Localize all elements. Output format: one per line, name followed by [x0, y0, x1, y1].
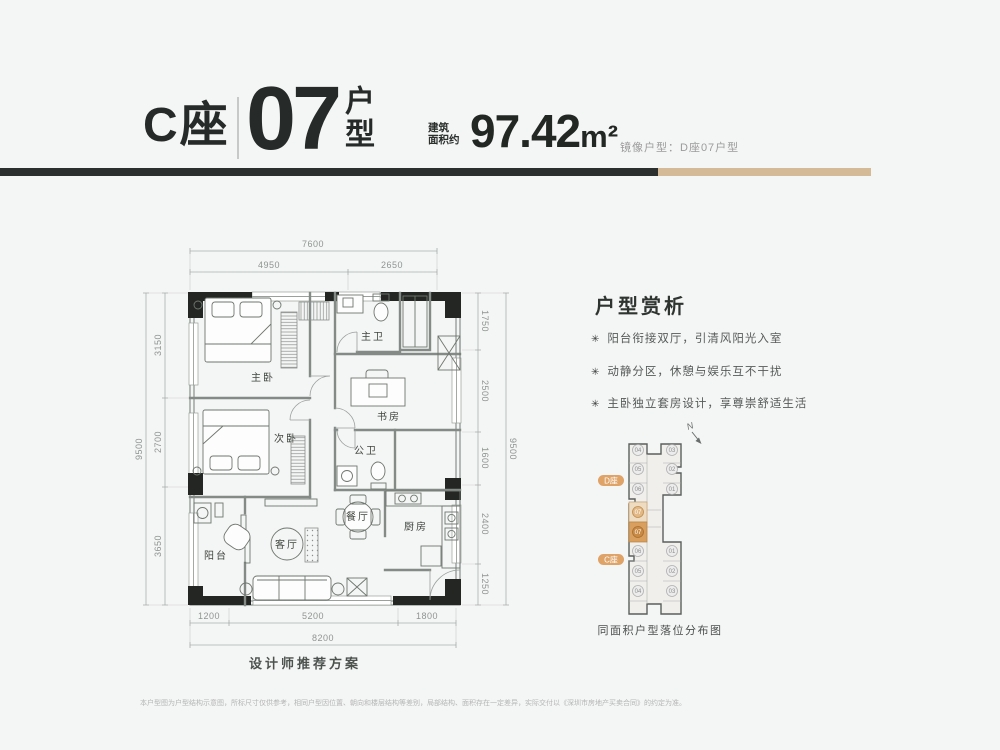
dim-right-2: 1600: [480, 447, 490, 469]
unit-number-label: 06: [635, 487, 642, 493]
dim-left-total: 9500: [134, 438, 144, 460]
dim-bottom-0: 1200: [198, 611, 220, 621]
washer: [194, 503, 223, 523]
asterisk-bullet-icon: ✳: [591, 399, 600, 410]
area-label-line1: 建筑: [428, 122, 460, 134]
disclaimer-text: 本户型图为户型结构示意图，所标尺寸仅供参考，相同户型因位置、朝向和楼层结构等差别…: [140, 698, 860, 708]
dim-left-2: 3650: [153, 535, 163, 557]
area-label: 建筑 面积约: [428, 122, 460, 146]
side-table: [347, 578, 367, 596]
unit-number-label: 01: [669, 549, 676, 555]
sofa: [240, 576, 344, 600]
dim-right-4: 1250: [480, 573, 490, 595]
unit-number-label: 04: [635, 448, 642, 454]
shelf-dotted: [305, 528, 318, 562]
armchair: [221, 521, 253, 553]
door-master-bath: [337, 332, 357, 352]
room-label-master-bath: 主卫: [361, 331, 385, 343]
dim-right-3: 2400: [480, 513, 490, 535]
analysis-point: ✳阳台衔接双厅，引清风阳光入室: [591, 330, 807, 346]
analysis-point-text: 阳台衔接双厅，引清风阳光入室: [607, 333, 782, 345]
divider-tan: [658, 168, 871, 176]
analysis-point-text: 动静分区，休憩与娱乐互不干扰: [607, 366, 782, 378]
asterisk-bullet-icon: ✳: [591, 334, 600, 345]
unit-number: 07: [246, 74, 338, 164]
window-left-balcony: [189, 513, 198, 593]
dim-top-total: 7600: [302, 239, 324, 249]
dim-right-1: 2500: [480, 380, 490, 402]
room-label-living: 客厅: [275, 538, 299, 551]
asterisk-bullet-icon: ✳: [591, 367, 600, 378]
divider-dark: [0, 168, 658, 176]
room-label-balcony: 阳台: [204, 549, 228, 562]
unit-d07-label: 07: [635, 510, 642, 516]
svg-text:N: N: [685, 420, 695, 432]
door-master-bedroom: [310, 376, 330, 396]
furniture: [193, 294, 460, 600]
unit-c07-label: 07: [635, 530, 642, 536]
unit-number-label: 03: [669, 589, 676, 595]
dim-right-total: 9500: [508, 438, 518, 460]
analysis-title: 户型赏析: [595, 290, 687, 319]
room-label-master-bedroom: 主卧: [251, 371, 275, 384]
room-label-study: 书房: [377, 410, 401, 423]
area-unit: m²: [580, 119, 618, 154]
guest-bath-fixtures: [337, 462, 386, 489]
unit-number-label: 03: [669, 448, 676, 454]
c-building-badge: C座: [598, 554, 624, 565]
analysis-list: ✳阳台衔接双厅，引清风阳光入室 ✳动静分区，休憩与娱乐互不干扰 ✳主卧独立套房设…: [591, 330, 807, 428]
door-second-bedroom: [290, 400, 310, 420]
north-arrow-icon: N: [685, 420, 701, 444]
unit-number-label: 02: [669, 569, 676, 575]
unit-number-label: 01: [669, 487, 676, 493]
dim-left-1: 2700: [153, 431, 163, 453]
bed-master: [194, 298, 281, 362]
hall-closet: [299, 302, 329, 320]
dim-bottom-2: 1800: [416, 611, 438, 621]
dim-right-0: 1750: [480, 310, 490, 332]
c-building-label: C座: [604, 555, 618, 565]
header-separator: [237, 97, 239, 159]
dim-bottom-total: 8200: [312, 633, 334, 643]
dim-bottom-1: 5200: [302, 611, 324, 621]
wardrobe-master: [281, 312, 297, 368]
locator-caption: 同面积户型落位分布图: [585, 622, 735, 638]
unit-number-label: 05: [635, 467, 642, 473]
building-name: C座: [143, 102, 230, 150]
study-desk: [351, 370, 405, 406]
unit-number-label: 02: [669, 467, 676, 473]
tv-cabinet: [265, 499, 317, 506]
unit-type-label: 户型: [338, 85, 372, 151]
door-guest-bath: [337, 430, 355, 448]
room-label-guest-bath: 公卫: [354, 446, 378, 457]
unit-number-label: 05: [635, 569, 642, 575]
building-locator: N 04 05 06 03 02 01 07 07 06 05 04 01 02…: [595, 415, 725, 625]
closet-cabinet: [403, 296, 427, 347]
room-label-kitchen: 厨房: [404, 520, 428, 533]
d-building-label: D座: [604, 476, 618, 486]
mirror-unit-note: 镜像户型：D座07户型: [620, 139, 739, 155]
dim-top-left: 4950: [258, 260, 280, 270]
dim-top-right: 2650: [381, 260, 403, 270]
unit-number-label: 04: [635, 589, 642, 595]
analysis-point: ✳主卧独立套房设计，享尊崇舒适生活: [591, 395, 807, 411]
room-label-second-bedroom: 次卧: [274, 432, 298, 445]
dim-left-0: 3150: [153, 334, 163, 356]
window-left-master: [189, 323, 198, 385]
bed-second: [193, 410, 279, 475]
area-value: 97.42m²: [470, 108, 618, 154]
analysis-point: ✳动静分区，休憩与娱乐互不干扰: [591, 363, 807, 379]
d-building-badge: D座: [598, 475, 624, 486]
floorplan: 7600 4950 2650 3150 2700 3650 9500 1750 …: [85, 228, 525, 678]
room-label-dining: 餐厅: [346, 510, 370, 523]
floorplan-caption: 设计师推荐方案: [85, 653, 525, 672]
analysis-point-text: 主卧独立套房设计，享尊崇舒适生活: [607, 398, 807, 410]
door-study: [335, 408, 355, 428]
area-label-line2: 面积约: [428, 134, 460, 146]
unit-number-label: 06: [635, 549, 642, 555]
area-number: 97.42: [470, 105, 580, 157]
